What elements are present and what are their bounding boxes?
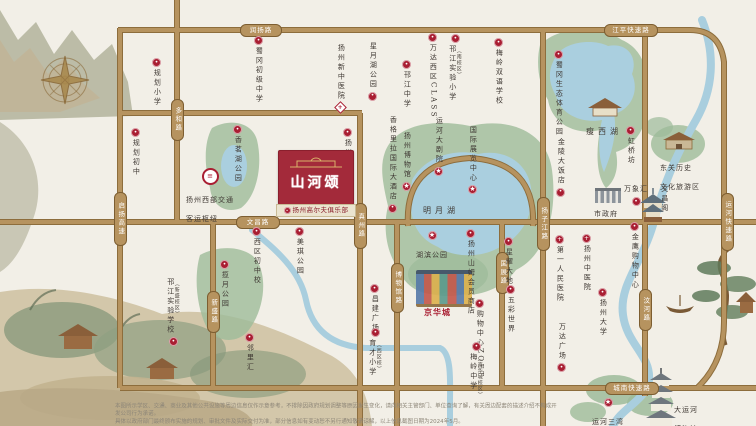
road-badge-qiyang-hwy: 启扬高速 [114,192,127,246]
poi-wanda-plaza: •万达广场 [557,323,566,372]
poi-label: 梅岭双语学校 [495,49,503,106]
poi-label: 国际展览中心 [469,126,477,183]
poi-hubin-park: ★湖滨公园 [416,231,448,261]
poi-label: 蜀冈初级中学 [255,47,263,104]
poi-label: 扬州山姆会员商店 [467,240,475,316]
project-name: 山河颂 [291,172,342,192]
road-badge-wenhe-rd: 汶河路 [639,289,652,331]
project-banner-label: 扬州高尔夫俱乐部 [293,207,349,214]
disclaimer: 本图所示学区、交通、商业及其他公共设施等周边信息仅作示意参考，不排除因政府规划调… [115,403,558,426]
dot-marker-icon: • [630,222,639,231]
poi-label: 五彩世界 [507,296,515,334]
poi-label: 万达西区CLASS [429,44,437,119]
poi-label: 香格里拉国际大酒店 [389,116,397,202]
poi-sublabel: （京华城校区） [477,356,484,398]
dot-marker-icon: • [494,38,503,47]
poi-label: 梅岭中学 [469,353,477,391]
poi-wucai-world: •五彩世界 [506,285,515,334]
dot-marker-icon: • [632,197,641,206]
poi-label: 万象汇 [624,185,648,193]
dot-marker-icon: • [428,33,437,42]
poi-shugang-sports-park: •蜀冈生态体育公园 [554,50,563,137]
poi-yangzhou-tcm-hospital: +扬州中医院 [582,234,591,293]
poi-label: 扬州大学 [599,299,607,337]
poi-xiangminghu-park: •香茗湖公园 [233,125,242,184]
dot-marker-icon: • [131,128,140,137]
dot-marker-icon: • [254,36,263,45]
dot-marker-icon: • [343,128,352,137]
dot-marker-icon: • [245,333,254,342]
poi-label: 虹桥坊 [627,137,635,166]
poi-label: 明月湖 [423,206,459,215]
poi-label: 第一人民医院 [556,246,564,303]
poi-jinling-hotel: •金陵大饭店 [556,138,565,197]
dot-marker-icon: • [557,363,566,372]
poi-label: 运河三湾 风景区 [592,418,624,426]
transit-marker-icon: ≡ [202,168,219,185]
star-marker-icon: ★ [604,398,613,407]
project-banner: • 扬州高尔夫俱乐部 [276,204,356,217]
poi-guihua-primary: •规划小学 [152,58,161,107]
poi-label: 蜀冈生态体育公园 [555,61,563,137]
dot-marker-icon: • [220,260,229,269]
disclaimer-line1: 本图所示学区、交通、商业及其他公共设施等周边信息仅作示意参考，不排除因政府规划调… [115,403,558,418]
dot-marker-icon: • [472,342,481,351]
plus-marker-icon: + [582,234,591,243]
poi-label: 星耀大地 [505,248,513,286]
poi-shouxihu: 瘦西湖 [586,119,622,138]
dot-marker-icon: • [402,60,411,69]
road-badge-yunhe-expwy: 运河快速路 [721,193,734,251]
poi-label: 邗江实验学校 [166,278,174,335]
poi-label: 揽月公园 [221,271,229,309]
poi-label: 运河大剧院 [435,117,443,165]
poi-sanwan-scenic: ★运河三湾 风景区 [592,398,624,426]
poi-label: 扬州新中医院 [337,44,345,101]
star-marker-icon: ★ [402,182,411,191]
poi-hanjiang-exp-primary: •邗江实验小学（南校区） [448,34,463,102]
poi-canal-theatre: ★运河大剧院 [434,117,443,176]
poi-mingyuehu: 明月湖 [423,198,459,217]
poi-label: 市政府 [594,210,618,218]
disclaimer-line2: 具体以政府部门最终颁布实施的规划、审批文件及实际交付为准，部分信息如有变动恕不另… [115,418,558,426]
road-badge-chengnan-expwy: 城南快速路 [605,382,659,395]
poi-shangri-la-hotel: •香格里拉国际大酒店 [388,116,397,213]
poi-yangzhou-museum: ★扬州博物馆 [402,132,411,191]
poi-sublabel: （南校区） [456,48,463,78]
poi-label: 西区初中校 [253,238,261,286]
poi-linlihui: •邻里汇 [245,333,254,373]
golf-icon: • [284,207,291,214]
poi-label: 规划初中 [132,139,140,177]
poi-meiling-bilingual: •梅岭双语学校 [494,38,503,106]
dot-marker-icon: • [506,285,515,294]
poi-label: 金鹰购物中心 [631,233,639,290]
poi-xin-tcm-hospital: +扬州新中医院 [336,44,345,112]
dot-marker-icon: • [370,284,379,293]
gate-ornament-icon [288,156,344,168]
poi-wanxianghui: •万象汇 [624,176,648,206]
poi-meiling-middle: •梅岭中学（京华城校区） [469,342,484,398]
poi-shizhengfu: 市政府 [594,201,618,220]
road-badge-yangzijiang-rd: 扬子江路 [537,197,550,251]
dot-marker-icon: • [475,299,484,308]
boat-icon [666,295,694,313]
dot-marker-icon: • [371,328,380,337]
dot-marker-icon: • [554,50,563,59]
poi-hanjiang-middle: •邗江中学 [402,60,411,109]
road-badge-duohe-rd: 多和路 [171,99,184,141]
poi-hongqiaofang: •虹桥坊 [626,126,635,166]
poi-west-transport-hub: ≡扬州西部交通 客运枢纽 [186,168,234,225]
poi-label: 星月湖公园 [369,42,377,90]
poi-wenchangge: 文昌阁 [660,185,668,214]
star-marker-icon: ★ [434,167,443,176]
road-badge-xinsheng-rd: 新盛路 [207,291,220,333]
dot-marker-icon: • [556,188,565,197]
poi-intl-expo-center: ★国际展览中心 [468,126,477,194]
poi-label: 邻里汇 [246,344,254,373]
dot-marker-icon: • [252,227,261,236]
dot-marker-icon: • [233,125,242,134]
dot-marker-icon: • [451,34,460,43]
poi-label: 金陵大饭店 [557,138,565,186]
poi-label: 规划小学 [153,69,161,107]
poi-sublabel: （新盛校区） [174,281,181,317]
poi-label: 扬州西部交通 客运枢纽 [186,196,234,223]
diamond-marker-icon: + [334,101,347,114]
star-marker-icon: ★ [428,231,437,240]
poi-sams-club: •扬州山姆会员商店 [466,229,475,316]
poi-changjian-plaza: •昌建广场 [370,284,379,333]
poi-label: 瘦西湖 [586,127,622,136]
poi-jinghuacheng: 京华城 [424,300,451,319]
poi-jinying-mall: •金鹰购物中心 [630,222,639,290]
road-badge-bowuguan-rd: 博物馆路 [391,263,404,313]
dot-marker-icon: • [598,288,607,297]
dot-marker-icon: • [504,237,513,246]
dot-marker-icon: • [388,204,397,213]
poi-grand-canal-museum: 大运河 博物馆 [674,397,698,426]
poi-meiqi-park: •美琪公园 [295,227,304,276]
poi-xingyao-dadi: •星耀大地 [504,237,513,286]
plus-marker-icon: + [555,235,564,244]
poi-label: 扬州中医院 [583,245,591,293]
dot-marker-icon: • [626,126,635,135]
road-badge-jiangping-expwy: 江平快速路 [604,24,658,37]
poi-label: 邗江实验小学 [448,45,456,102]
poi-yucai-primary: •育才小学（西区校） [368,328,383,377]
star-marker-icon: ★ [468,185,477,194]
poi-label: 扬州博物馆 [403,132,411,180]
poi-hanjiang-exp-school: •邗江实验学校（新盛校区） [166,278,181,346]
dot-marker-icon: • [169,337,178,346]
poi-label: 万达广场 [558,323,566,361]
poi-label: 育才小学 [368,339,376,377]
poi-guihua-middle: •规划初中 [131,128,140,177]
poi-west-district-middle: •西区初中校 [252,227,261,286]
dot-marker-icon: • [368,92,377,101]
poi-label: 京华城 [424,307,451,317]
dot-marker-icon: • [295,227,304,236]
poi-yangzhou-university: •扬州大学 [598,288,607,337]
poi-label: 美琪公园 [296,238,304,276]
poi-shugang-middle: •蜀冈初级中学 [254,36,263,104]
project-logo: 山河颂 [278,150,354,205]
poi-lanyue-park: •揽月公园 [220,260,229,309]
poi-label: 邗江中学 [403,71,411,109]
map: 山河颂 • 扬州高尔夫俱乐部 本图所示学区、交通、商业及其他公共设施等周边信息仅… [0,0,756,426]
poi-label: 湖滨公园 [416,251,448,259]
poi-label: 香茗湖公园 [234,136,242,184]
poi-xingyuehu-park: •星月湖公园 [368,42,377,101]
dot-marker-icon: • [152,58,161,67]
poi-first-people-hospital: +第一人民医院 [555,235,564,303]
poi-label: 大运河 博物馆 [674,406,698,426]
poi-label: 文昌阁 [660,185,668,214]
dot-marker-icon: • [466,229,475,238]
poi-sublabel: （西区校） [376,342,383,372]
poi-wanda-west-class: •万达西区CLASS [428,33,437,119]
